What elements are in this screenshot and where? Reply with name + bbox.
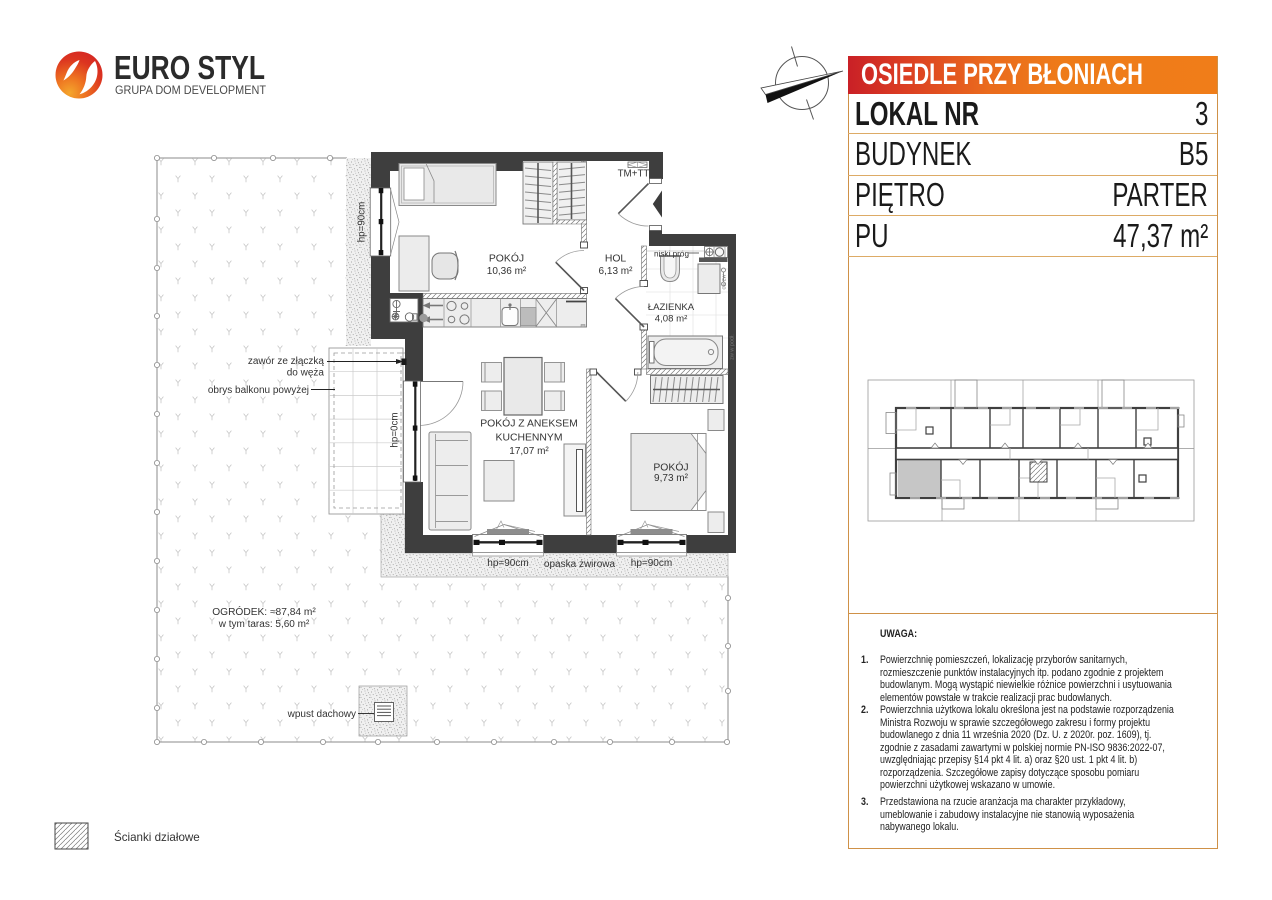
svg-text:KUCHENNYM: KUCHENNYM [496, 433, 563, 444]
svg-text:wpust dachowy: wpust dachowy [287, 709, 356, 720]
svg-text:zawór ze złączką: zawór ze złączką [248, 356, 325, 367]
svg-text:OGRÓDEK: ≈87,84 m²: OGRÓDEK: ≈87,84 m² [212, 605, 316, 618]
svg-text:hp=90cm: hp=90cm [631, 558, 672, 569]
svg-text:ŁAZIENKA: ŁAZIENKA [648, 302, 695, 313]
svg-text:POKÓJ: POKÓJ [489, 252, 524, 265]
svg-text:hp=90cm: hp=90cm [357, 202, 368, 243]
svg-text:TM+TT: TM+TT [618, 169, 650, 180]
svg-text:HOL: HOL [605, 254, 627, 265]
svg-text:Ścianki działowe: Ścianki działowe [114, 831, 200, 844]
svg-text:4,08 m²: 4,08 m² [655, 314, 688, 325]
svg-text:POKÓJ Z ANEKSEM: POKÓJ Z ANEKSEM [480, 417, 578, 430]
svg-text:GRUPA DOM DEVELOPMENT: GRUPA DOM DEVELOPMENT [115, 83, 266, 97]
svg-text:EURO STYL: EURO STYL [114, 49, 265, 86]
svg-text:hp=90cm: hp=90cm [487, 558, 528, 569]
svg-text:cw zw: cw zw [722, 274, 728, 289]
svg-text:zw w podł.: zw w podł. [730, 334, 736, 360]
svg-text:w tym taras: 5,60 m²: w tym taras: 5,60 m² [218, 619, 310, 630]
svg-text:hp=0cm: hp=0cm [390, 412, 401, 447]
svg-text:6,13 m²: 6,13 m² [599, 266, 634, 277]
svg-text:obrys balkonu powyżej: obrys balkonu powyżej [208, 385, 309, 396]
svg-text:do węża: do węża [287, 368, 325, 379]
svg-text:17,07 m²: 17,07 m² [509, 446, 549, 457]
svg-text:opaska żwirowa: opaska żwirowa [544, 559, 616, 570]
svg-text:10,36 m²: 10,36 m² [487, 266, 527, 277]
svg-text:9,73 m²: 9,73 m² [654, 473, 689, 484]
svg-text:POKÓJ: POKÓJ [653, 461, 688, 474]
